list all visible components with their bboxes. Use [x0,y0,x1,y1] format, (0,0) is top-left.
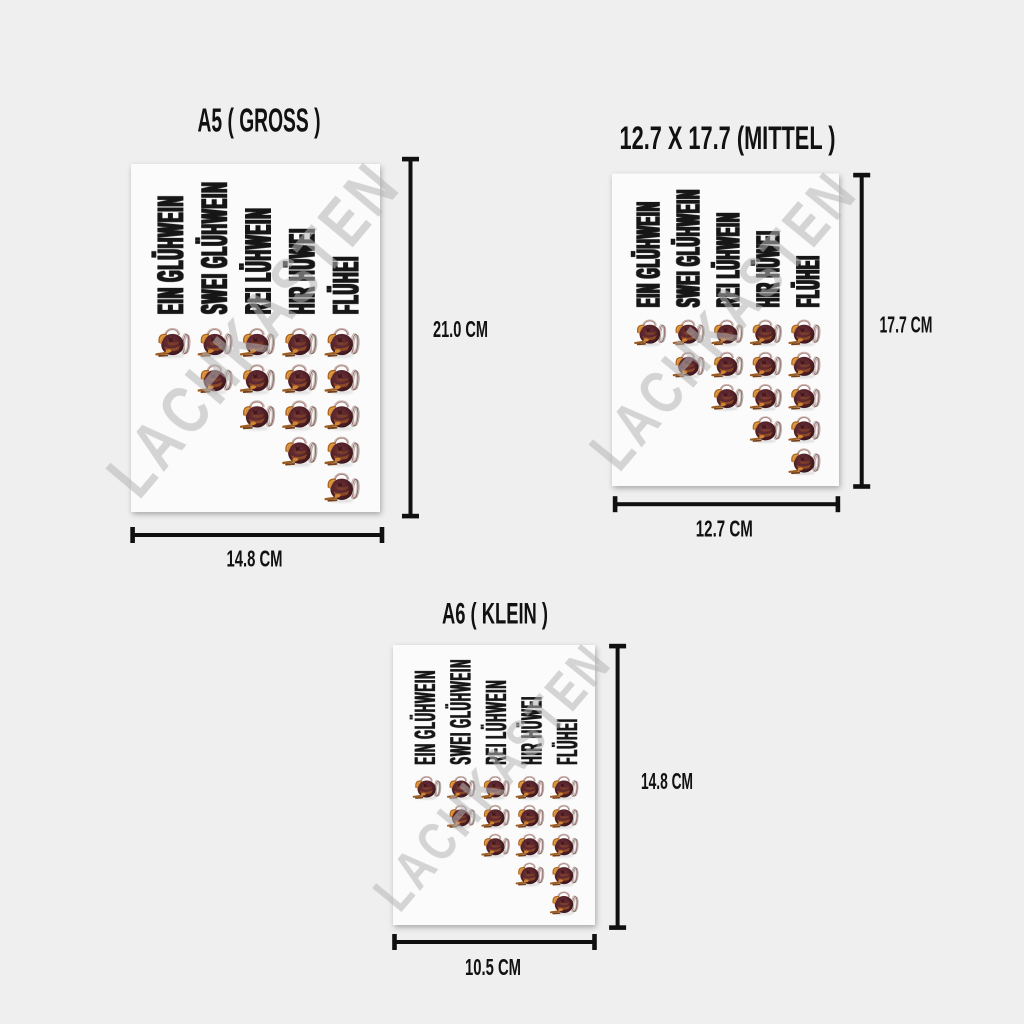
svg-text:12.7 CM: 12.7 CM [696,516,753,542]
svg-text:A5 ( GROSS ): A5 ( GROSS ) [198,102,321,139]
svg-text:14.8 CM: 14.8 CM [641,768,693,794]
svg-text:17.7 CM: 17.7 CM [880,312,933,338]
svg-text:21.0 CM: 21.0 CM [433,316,488,342]
svg-text:10.5 CM: 10.5 CM [465,954,521,980]
svg-text:14.8 CM: 14.8 CM [227,546,283,572]
svg-text:12.7 X 17.7 (MITTEL ): 12.7 X 17.7 (MITTEL ) [620,120,836,156]
svg-text:A6 ( KLEIN ): A6 ( KLEIN ) [442,598,548,631]
